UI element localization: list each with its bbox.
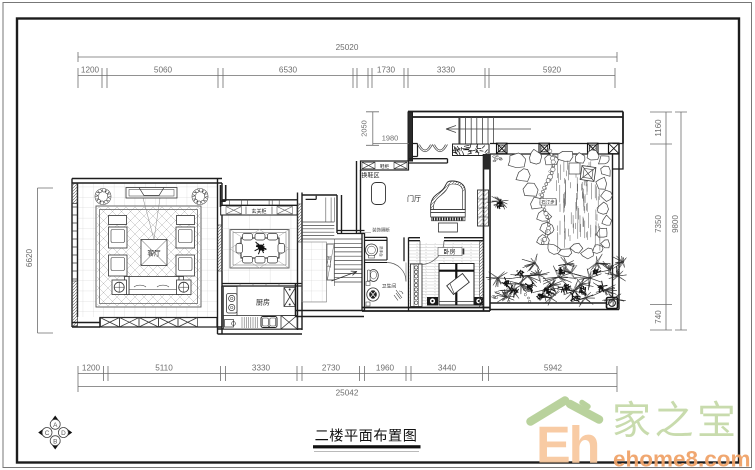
svg-text:Eh: Eh bbox=[536, 417, 598, 470]
svg-text:A: A bbox=[53, 422, 58, 429]
svg-text:740: 740 bbox=[654, 310, 663, 324]
svg-text:装饰隔断: 装饰隔断 bbox=[372, 227, 390, 234]
svg-text:D: D bbox=[61, 430, 66, 437]
svg-text:5942: 5942 bbox=[544, 364, 563, 373]
svg-text:5920: 5920 bbox=[543, 66, 562, 75]
svg-text:B: B bbox=[53, 438, 57, 445]
svg-text:客厅: 客厅 bbox=[147, 249, 161, 258]
svg-text:2050: 2050 bbox=[360, 120, 369, 136]
svg-text:1200: 1200 bbox=[81, 66, 100, 75]
svg-text:C: C bbox=[45, 430, 50, 437]
svg-text:25020: 25020 bbox=[336, 43, 359, 52]
svg-text:9800: 9800 bbox=[671, 215, 680, 233]
svg-text:6530: 6530 bbox=[279, 66, 298, 75]
svg-text:5060: 5060 bbox=[154, 66, 173, 75]
svg-text:3330: 3330 bbox=[437, 66, 456, 75]
svg-text:卧房: 卧房 bbox=[443, 248, 455, 256]
svg-text:二楼平面布置图: 二楼平面布置图 bbox=[315, 429, 418, 445]
svg-text:1160: 1160 bbox=[654, 119, 663, 137]
svg-text:玄关柜: 玄关柜 bbox=[251, 208, 266, 215]
svg-text:1730: 1730 bbox=[377, 66, 396, 75]
svg-text:1200: 1200 bbox=[82, 364, 101, 373]
svg-text:5110: 5110 bbox=[155, 364, 173, 373]
svg-text:石汀步: 石汀步 bbox=[541, 199, 555, 206]
svg-text:洗手台: 洗手台 bbox=[379, 246, 384, 257]
svg-text:3330: 3330 bbox=[252, 364, 271, 373]
svg-text:25042: 25042 bbox=[336, 389, 359, 398]
svg-text:门厅: 门厅 bbox=[407, 194, 421, 203]
svg-text:换鞋区: 换鞋区 bbox=[361, 172, 379, 180]
svg-text:卫生间: 卫生间 bbox=[382, 283, 397, 290]
svg-text:厨房: 厨房 bbox=[256, 298, 270, 307]
svg-text:家之宝: 家之宝 bbox=[612, 400, 740, 443]
svg-text:7350: 7350 bbox=[654, 215, 663, 233]
svg-text:3440: 3440 bbox=[438, 364, 457, 373]
svg-text:鞋柜: 鞋柜 bbox=[380, 163, 390, 170]
svg-text:6620: 6620 bbox=[25, 248, 34, 267]
svg-text:ehome8.com: ehome8.com bbox=[613, 447, 751, 470]
svg-text:2730: 2730 bbox=[322, 364, 341, 373]
svg-text:1980: 1980 bbox=[382, 134, 398, 143]
svg-text:1960: 1960 bbox=[376, 364, 395, 373]
